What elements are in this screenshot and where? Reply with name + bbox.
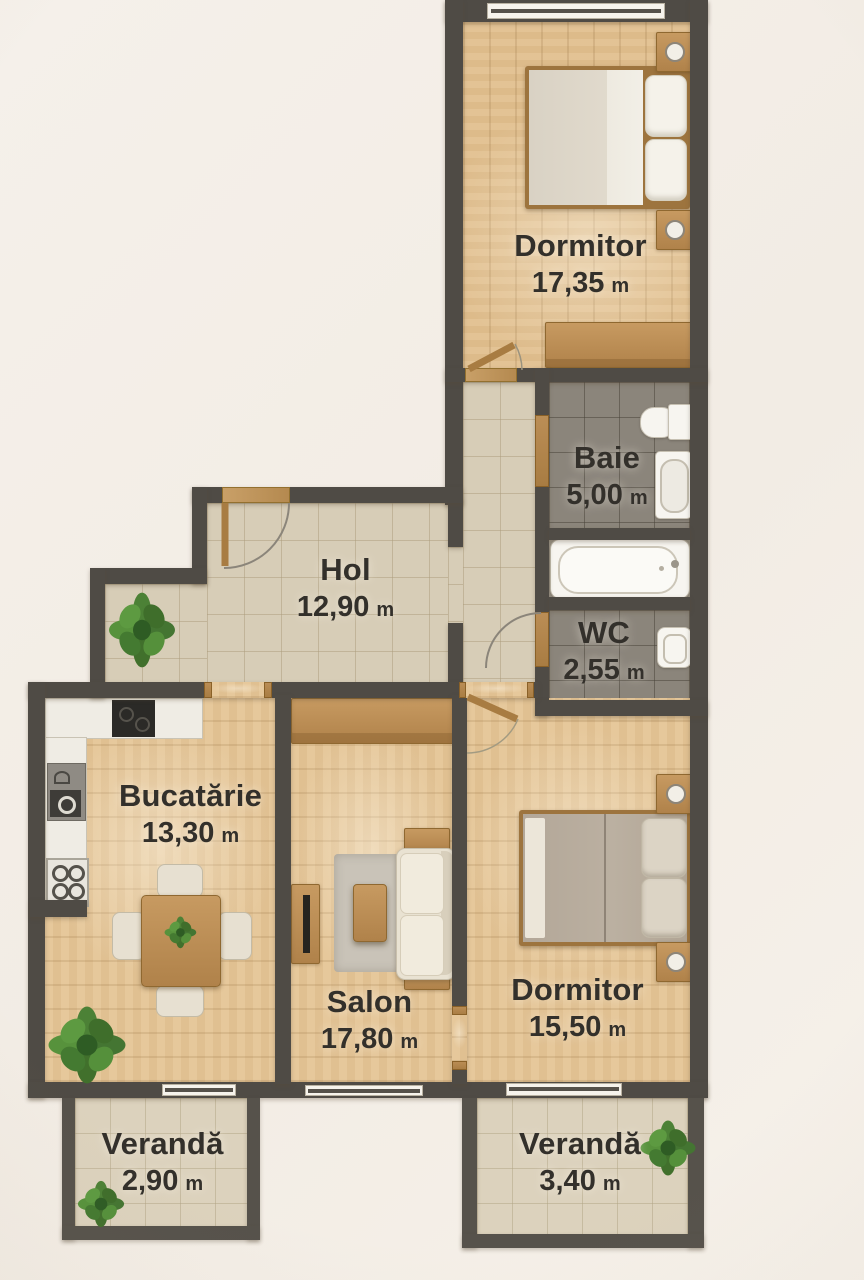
room-name: Verandă xyxy=(475,1128,685,1161)
wall-segment xyxy=(535,700,708,716)
room-area: 12,90m xyxy=(263,592,428,623)
tv-stand xyxy=(291,884,320,964)
lamp-icon xyxy=(665,42,685,62)
lamp-icon xyxy=(666,952,686,972)
burner-icon xyxy=(135,717,150,732)
bed-seam xyxy=(604,814,606,942)
floor-plan: Dormitor 17,35m Baie 5,00m Hol 12,90m WC… xyxy=(0,0,864,1280)
room-area: 17,35m xyxy=(488,268,673,299)
sofa-cushion xyxy=(400,853,444,914)
door-threshold-dormitor-1 xyxy=(465,368,517,382)
cooktop-icon xyxy=(112,700,155,737)
wall-segment xyxy=(28,682,45,1098)
veranda-wall xyxy=(62,1226,260,1240)
wall-segment xyxy=(90,568,105,698)
room-label-veranda-dreapta: Verandă 3,40m xyxy=(475,1128,685,1197)
room-label-salon: Salon 17,80m xyxy=(287,986,452,1055)
tv-icon xyxy=(303,895,310,953)
pillow xyxy=(641,878,687,938)
kitchen-sink-module xyxy=(47,763,86,821)
sofa-cushion xyxy=(400,915,444,976)
room-label-veranda-stanga: Verandă 2,90m xyxy=(70,1128,255,1197)
dining-chair xyxy=(156,985,204,1017)
room-area: 2,55m xyxy=(538,655,670,686)
window-slat xyxy=(509,1087,619,1091)
door-jamb xyxy=(452,1061,467,1070)
pillow xyxy=(641,818,687,878)
faucet-icon xyxy=(54,771,70,784)
dining-chair xyxy=(157,864,203,898)
room-area: 3,40m xyxy=(475,1166,685,1197)
room-name: Dormitor xyxy=(480,974,675,1007)
wardrobe-salon xyxy=(291,698,454,744)
bathtub xyxy=(550,539,690,599)
door-jamb xyxy=(452,1006,467,1015)
room-name: Bucatărie xyxy=(88,780,293,813)
door-jamb xyxy=(527,682,534,698)
room-label-bucatarie: Bucatărie 13,30m xyxy=(88,780,293,849)
wall-segment xyxy=(448,623,463,683)
veranda-wall xyxy=(462,1234,704,1248)
room-area: 5,00m xyxy=(543,480,671,511)
room-label-wc: WC 2,55m xyxy=(538,617,670,686)
dresser-dormitor-1 xyxy=(545,322,692,368)
bed-dormitor-2 xyxy=(519,810,691,946)
drain-icon xyxy=(58,796,76,814)
room-label-dormitor-1: Dormitor 17,35m xyxy=(488,230,673,299)
window-salon xyxy=(305,1085,423,1096)
room-name: Salon xyxy=(287,986,452,1019)
door-jamb xyxy=(264,682,272,698)
burner-icon xyxy=(119,707,134,722)
room-name: Dormitor xyxy=(488,230,673,263)
dining-table xyxy=(141,895,221,987)
entrance-door-threshold xyxy=(222,487,290,503)
wall-segment xyxy=(445,0,463,505)
room-area: 2,90m xyxy=(70,1166,255,1197)
floor-corridor xyxy=(463,382,535,682)
window-slat xyxy=(165,1088,233,1092)
window-bucatarie xyxy=(162,1084,236,1096)
wall-segment xyxy=(690,0,708,1098)
bed-sheet-fold xyxy=(525,818,545,938)
window-dormitor-2 xyxy=(506,1083,622,1096)
window-dormitor-1 xyxy=(487,3,665,19)
burner-icon xyxy=(68,883,85,900)
window-slat xyxy=(491,9,661,13)
room-name: WC xyxy=(538,617,670,650)
wall-segment xyxy=(30,900,87,917)
floor-hol-lower xyxy=(105,584,207,682)
doorway-dormitor-2 xyxy=(465,682,528,698)
room-name: Hol xyxy=(263,554,428,587)
drain-icon xyxy=(659,566,664,571)
room-area: 13,30m xyxy=(88,818,293,849)
sofa xyxy=(396,848,456,980)
opening-salon-dormitor-2 xyxy=(452,1014,467,1062)
burner-icon xyxy=(52,865,69,882)
room-area: 17,80m xyxy=(287,1024,452,1055)
faucet-icon xyxy=(671,560,679,568)
room-name: Verandă xyxy=(70,1128,255,1161)
burner-icon xyxy=(68,865,85,882)
room-name: Baie xyxy=(543,442,671,475)
wall-segment xyxy=(105,568,207,584)
wall-segment xyxy=(448,498,463,547)
room-label-baie: Baie 5,00m xyxy=(543,442,671,511)
toilet-tank xyxy=(668,404,692,440)
pillow xyxy=(645,139,687,201)
burner-icon xyxy=(52,883,69,900)
door-jamb xyxy=(459,682,466,698)
lamp-icon xyxy=(666,784,686,804)
room-area: 15,50m xyxy=(480,1012,675,1043)
door-jamb xyxy=(204,682,212,698)
bed-sheet-fold xyxy=(607,70,643,205)
coffee-table xyxy=(353,884,387,942)
room-label-hol: Hol 12,90m xyxy=(263,554,428,623)
doorway-bucatarie xyxy=(211,682,265,698)
pillow xyxy=(645,75,687,137)
nightstand xyxy=(656,32,694,72)
dining-chair xyxy=(218,912,252,960)
room-label-dormitor-2: Dormitor 15,50m xyxy=(480,974,675,1043)
wall-segment xyxy=(549,528,690,540)
floor-hol-passage xyxy=(448,547,463,623)
window-slat xyxy=(308,1089,420,1093)
wall-segment xyxy=(549,597,690,610)
bed-dormitor-1 xyxy=(525,66,690,209)
veranda-wall xyxy=(688,1098,704,1248)
